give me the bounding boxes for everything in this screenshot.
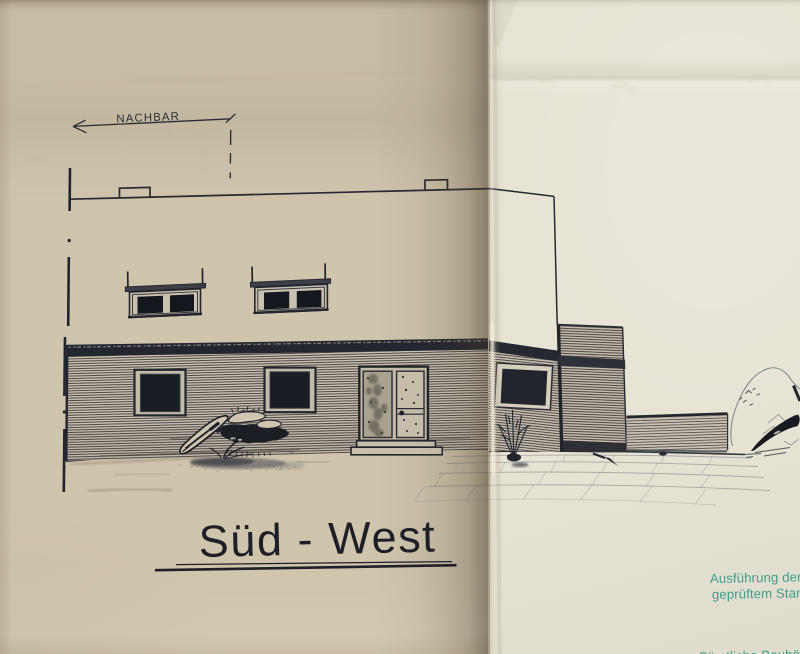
svg-text:Ausführung der K: Ausführung der K [710, 569, 800, 586]
svg-text:geprüftem Stand: geprüftem Stand [712, 585, 800, 602]
svg-text:Süd - West: Süd - West [198, 510, 437, 567]
